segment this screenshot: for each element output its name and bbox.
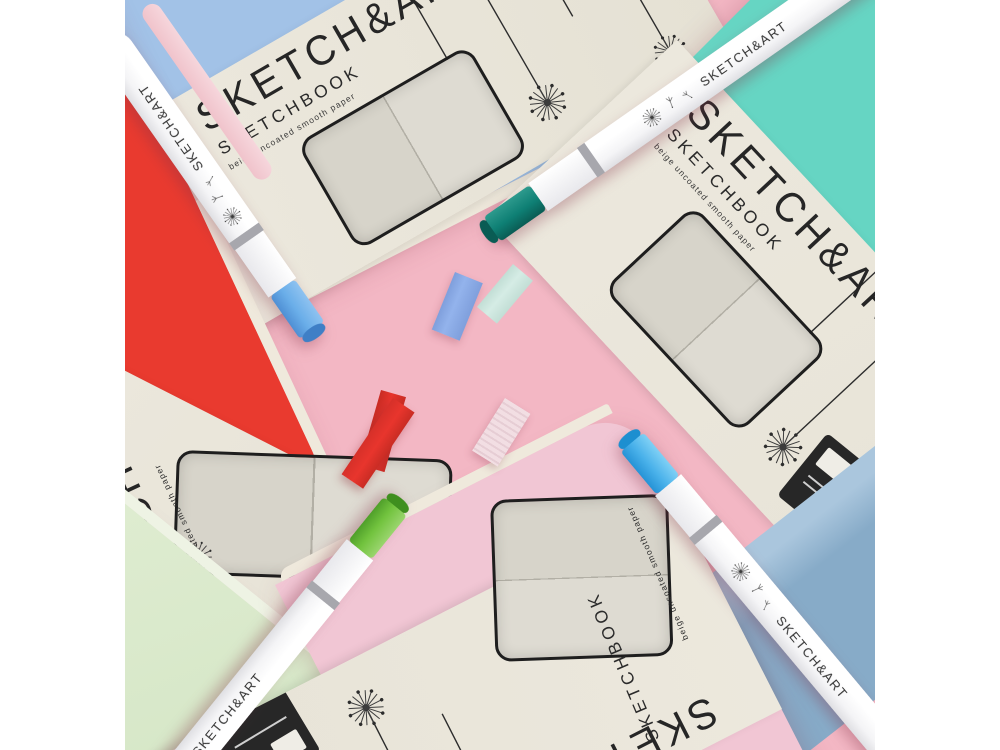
canvas: SKETCH&ART SKETCHBOOK beige uncoated smo… [0,0,1000,750]
product-photo: SKETCH&ART SKETCHBOOK beige uncoated smo… [125,0,875,750]
mint-ribbon-bookmark [477,264,533,324]
blue-ribbon-bookmark [432,272,483,341]
pink-band-window-cutout [490,494,674,662]
brand-title: SKETCH&ART [420,686,725,750]
